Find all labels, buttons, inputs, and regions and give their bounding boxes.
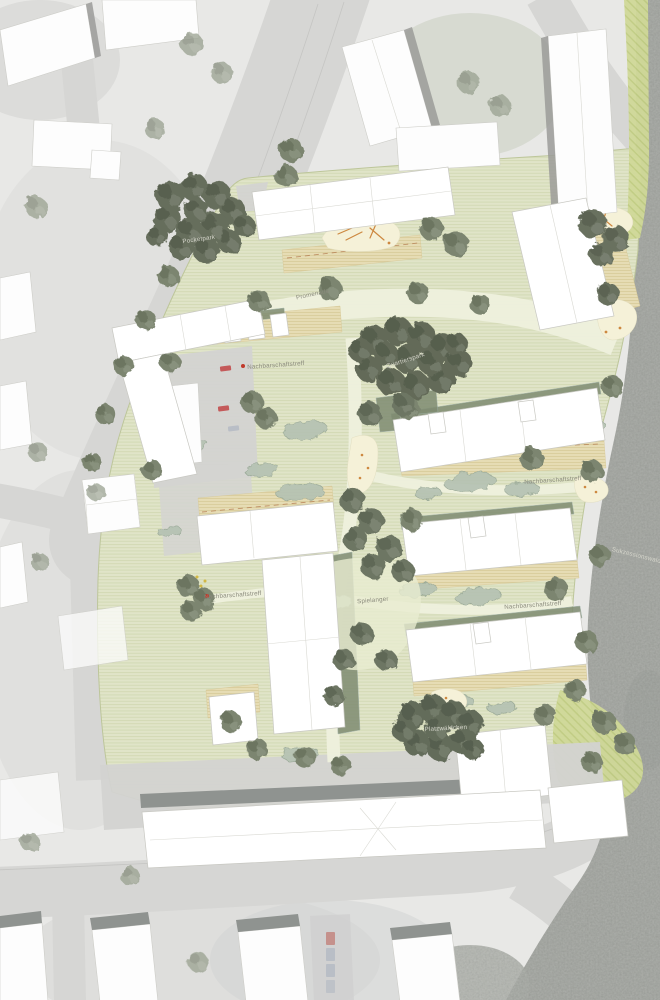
- treff-marker: [241, 364, 245, 368]
- site-plan-canvas: Pocketpark Promenade Nachbarschaftstreff…: [0, 0, 660, 1000]
- building: [548, 780, 628, 843]
- site-plan: Pocketpark Promenade Nachbarschaftstreff…: [0, 0, 660, 1000]
- road-left-branch: [0, 500, 98, 524]
- road-bottom-left-vertical: [68, 900, 70, 1000]
